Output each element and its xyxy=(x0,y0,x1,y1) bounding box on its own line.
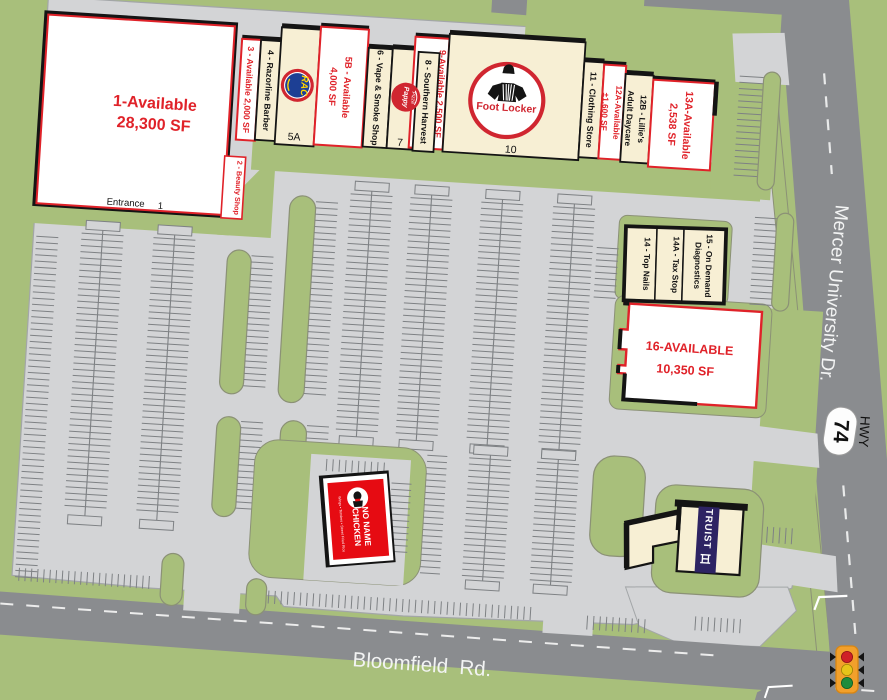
svg-text:10: 10 xyxy=(504,144,517,157)
svg-text:15 - On Demand: 15 - On Demand xyxy=(703,234,715,297)
svg-text:14 - Top Nails: 14 - Top Nails xyxy=(641,237,653,291)
svg-text:HWY: HWY xyxy=(856,415,873,447)
svg-text:Diagnostics: Diagnostics xyxy=(692,242,703,290)
svg-text:RAC: RAC xyxy=(298,75,310,96)
svg-text:Pappy: Pappy xyxy=(401,86,409,109)
svg-text:5A: 5A xyxy=(287,131,301,144)
svg-text:Pizza: Pizza xyxy=(409,91,416,104)
svg-text:1: 1 xyxy=(157,201,163,212)
svg-text:14A - Tax Stop: 14A - Tax Stop xyxy=(670,236,682,293)
svg-text:7: 7 xyxy=(397,137,404,149)
svg-text:74: 74 xyxy=(828,419,852,444)
